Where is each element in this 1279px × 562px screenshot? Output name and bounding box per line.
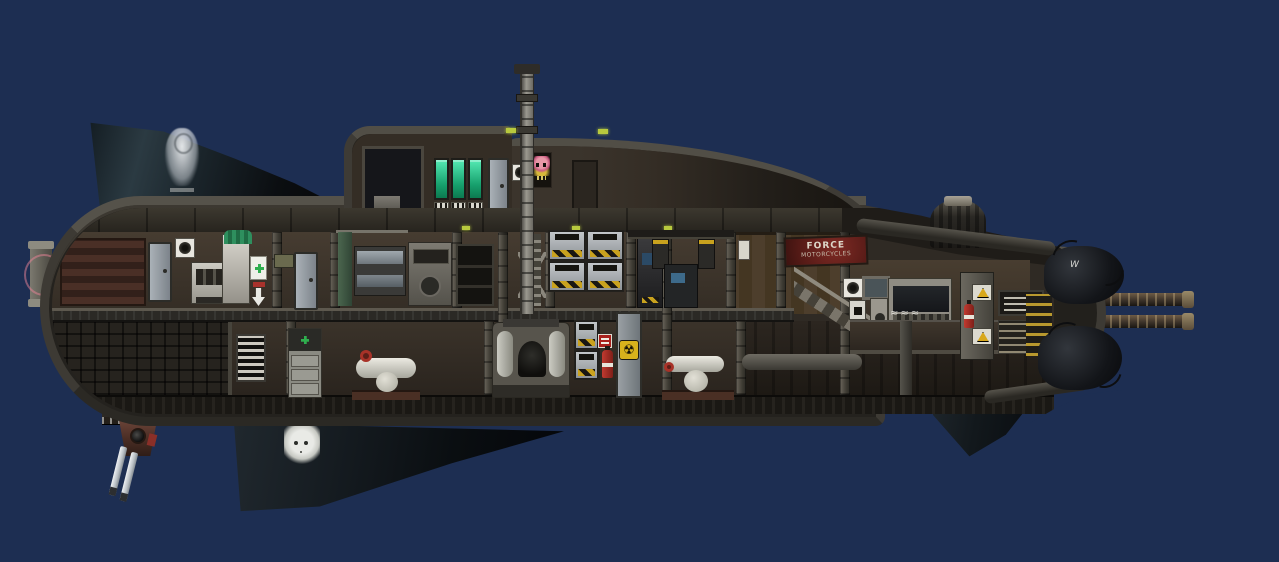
drawer[interactable] (291, 383, 319, 395)
fire-extinguisher-2[interactable] (602, 350, 613, 378)
drawer[interactable] (291, 369, 319, 381)
bow-turret-barrels (102, 444, 150, 503)
hazard-triangle-icon (972, 328, 992, 345)
ghost-decal-caption (170, 188, 194, 192)
force-poster-line2: MOTORCYCLES (786, 250, 866, 260)
command-fan-icon (843, 278, 863, 298)
pump-compressor-2[interactable] (662, 348, 734, 400)
force-poster: FORCE MOTORCYCLES (784, 235, 869, 268)
pump-valve[interactable] (664, 362, 674, 372)
ammo-console[interactable] (664, 264, 698, 308)
submarine-interior: FORCE MOTORCYCLES ≈≈≈ (52, 208, 1054, 414)
skull-face (533, 156, 550, 176)
storage-machine[interactable] (60, 238, 146, 306)
reactor-cylinder (549, 331, 565, 377)
hazard-tag (642, 297, 659, 303)
hazard-triangle-icon (972, 284, 992, 301)
bunk-bed[interactable] (354, 246, 406, 296)
wall-cabinet[interactable] (738, 240, 750, 260)
mattress-lower (357, 275, 403, 287)
skull-decal-icon (284, 426, 320, 468)
bow-turret-pivot (130, 428, 146, 444)
crew-door[interactable] (148, 242, 172, 302)
medical-cabinet[interactable] (250, 256, 267, 280)
pump-valve[interactable] (360, 350, 372, 362)
reactor-cylinder (497, 331, 513, 377)
sail-light (506, 128, 516, 133)
ladder[interactable] (533, 234, 541, 306)
red-tag (253, 282, 265, 287)
rack-shelf (458, 265, 492, 268)
medical-cross-icon (255, 264, 264, 273)
drawer-cabinet[interactable] (288, 328, 322, 398)
ghost-decal-icon (165, 128, 199, 186)
supply-lockers[interactable] (548, 230, 624, 292)
riser-pipe (900, 321, 912, 395)
oxygen-coil (224, 230, 252, 244)
overhead-hoist-rail (628, 230, 734, 239)
hazard-lockers[interactable] (574, 320, 600, 380)
crew-door-2[interactable] (294, 252, 318, 310)
medical-cross-icon (301, 336, 309, 344)
nav-terminal-screen[interactable] (468, 158, 483, 200)
cabinet-top (289, 329, 321, 351)
fire-extinguisher[interactable] (964, 304, 974, 328)
wall-pillar (272, 232, 282, 308)
deconstructor-meter (413, 249, 449, 264)
deconstructor-dial (419, 275, 441, 297)
console-graffiti: ≈≈≈ (890, 308, 921, 319)
mattress (357, 251, 403, 264)
sail-light (598, 129, 608, 134)
hoist[interactable] (698, 239, 715, 269)
breaker-panel[interactable] (236, 334, 266, 382)
bunk-curtain[interactable] (338, 232, 352, 306)
wall-pillar (726, 232, 736, 308)
radiation-icon: ☢ (619, 340, 639, 360)
storage-rack[interactable] (456, 244, 494, 306)
gauge-window (854, 307, 862, 315)
ocean-background: FORCE MOTORCYCLES ≈≈≈ (0, 0, 1279, 562)
deconstructor[interactable] (408, 242, 452, 306)
mast-tip (514, 64, 540, 74)
hoist-cap (653, 240, 668, 244)
pump-tank (376, 372, 398, 392)
docking-rail-bottom (1092, 315, 1189, 328)
deck-floor (52, 308, 794, 322)
turret-accent (147, 433, 158, 447)
ballast-compartment (52, 321, 232, 395)
console-screen (671, 273, 685, 283)
reactor-base (493, 385, 569, 397)
pump-compressor[interactable] (352, 348, 420, 400)
gauge-panel[interactable] (849, 300, 866, 320)
wall-pillar (626, 232, 636, 308)
hoist-cap (699, 240, 714, 244)
autodoc-machine[interactable] (222, 234, 250, 304)
mast-clamp (516, 126, 538, 134)
reactor-pipes (503, 319, 559, 327)
reactor-core-hatch (518, 341, 546, 377)
warning-plate-text (601, 338, 609, 340)
fan-vent-icon (175, 238, 195, 258)
nuclear-reactor[interactable] (492, 322, 570, 398)
pump-tank (684, 370, 708, 392)
drawer[interactable] (291, 355, 319, 367)
oil-gauge[interactable] (274, 254, 294, 268)
rack-shelf (458, 285, 492, 288)
mast-clamp (516, 94, 538, 102)
periscope-mast[interactable] (520, 72, 534, 314)
nav-terminal-screen[interactable] (451, 158, 466, 200)
nav-terminal-screen[interactable] (434, 158, 449, 200)
small-monitor[interactable] (862, 276, 890, 300)
engine-pipe (742, 354, 862, 370)
ceiling-light (462, 226, 470, 230)
